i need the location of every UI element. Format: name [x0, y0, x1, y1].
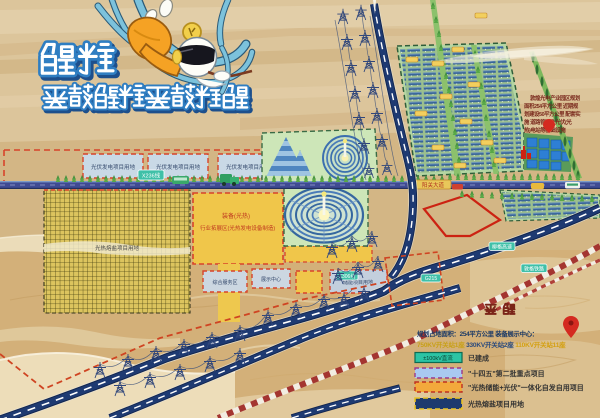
svg-text:划建设50平方公里 配套实: 划建设50平方公里 配套实	[524, 110, 581, 118]
svg-text:750KV开关站1座 330KV开关站2座 110KV开: 750KV开关站1座 330KV开关站2座 110KV开关站11座	[417, 340, 566, 349]
svg-text:综合服务区: 综合服务区	[212, 279, 237, 286]
svg-text:敦煌光电产业园区规划: 敦煌光电产业园区规划	[530, 94, 581, 102]
svg-text:"光热储能+光伏"一体化自发自用项目: "光热储能+光伏"一体化自发自用项目	[468, 383, 584, 392]
svg-text:G215: G215	[425, 276, 437, 282]
svg-text:已建成: 已建成	[468, 354, 489, 363]
svg-text:光伏发电项目用地: 光伏发电项目用地	[91, 163, 136, 171]
svg-text:±100kV直流: ±100kV直流	[423, 354, 453, 362]
svg-text:面积254平方公里 近期规: 面积254平方公里 近期规	[524, 102, 579, 110]
svg-text:敦格铁路: 敦格铁路	[524, 266, 544, 273]
svg-text:行业拓展区(光热发电设备制造): 行业拓展区(光热发电设备制造)	[200, 224, 275, 232]
svg-text:规划占地面积：254平方公里 装备展示中心：: 规划占地面积：254平方公里 装备展示中心：	[417, 329, 538, 338]
svg-text:展示中心: 展示中心	[261, 276, 281, 283]
svg-text:"十四五"第二批重点项目: "十四五"第二批重点项目	[468, 369, 545, 378]
svg-text:光热熔盐项目用地: 光热熔盐项目用地	[95, 244, 140, 252]
svg-text:装备(光热): 装备(光热)	[222, 212, 250, 220]
svg-text:光热熔盐项目用地: 光热熔盐项目用地	[467, 400, 524, 409]
svg-text:X236线: X236线	[142, 172, 161, 180]
svg-text:阳关大道: 阳关大道	[422, 181, 445, 189]
svg-text:柳格高速: 柳格高速	[492, 244, 512, 251]
